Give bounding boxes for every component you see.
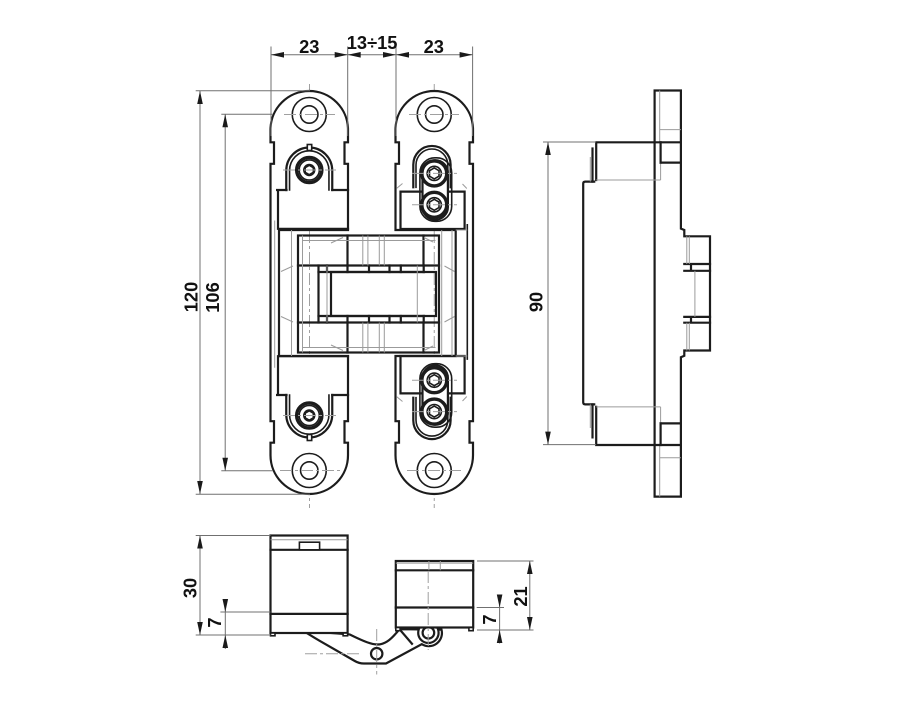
svg-text:7: 7 bbox=[204, 617, 225, 627]
svg-text:21: 21 bbox=[510, 586, 531, 606]
svg-text:23: 23 bbox=[299, 36, 319, 57]
svg-text:90: 90 bbox=[526, 292, 547, 312]
svg-text:30: 30 bbox=[180, 578, 201, 598]
svg-text:23: 23 bbox=[424, 36, 444, 57]
svg-text:13÷15: 13÷15 bbox=[347, 32, 398, 53]
svg-text:7: 7 bbox=[479, 614, 500, 624]
svg-text:120: 120 bbox=[181, 282, 202, 313]
svg-text:106: 106 bbox=[202, 282, 223, 313]
